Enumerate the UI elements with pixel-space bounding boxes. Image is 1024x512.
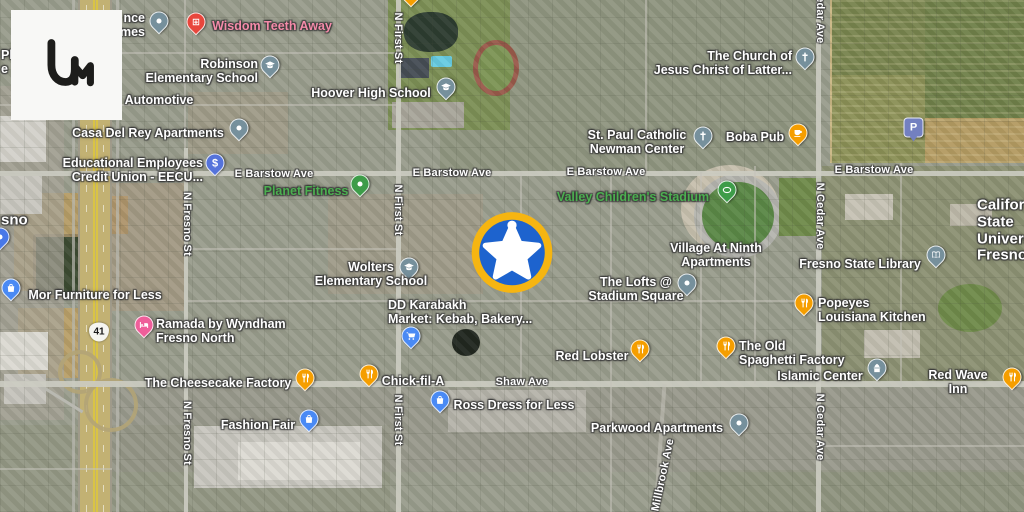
- fresno-state-library-marker: [927, 246, 946, 265]
- shopping-icon: [304, 414, 315, 425]
- eecu-credit-union-marker: $: [206, 154, 225, 173]
- village-at-ninth-apartments-label: Village At Ninth Apartments: [670, 241, 762, 269]
- valley-childrens-stadium-label: Valley Children's Stadium: [557, 190, 709, 204]
- cart-icon: [406, 331, 417, 342]
- top-edge-cut-marker-marker: [402, 0, 421, 4]
- ramada-by-wyndham-fresno-north-marker: [135, 316, 154, 335]
- church-icon: [698, 131, 709, 142]
- parking-marker: P: [904, 118, 923, 137]
- islamic-center-label: Islamic Center: [777, 369, 862, 383]
- food-icon: [635, 344, 646, 355]
- the-lofts-stadium-square-label: The Lofts @ Stadium Square: [588, 275, 683, 303]
- red-lobster-label: Red Lobster: [556, 349, 629, 363]
- church-of-jesus-christ-lds-label: The Church of Jesus Christ of Latter...: [654, 49, 792, 77]
- grocery-marker-marker: [402, 327, 421, 346]
- residence-fragment-marker: [150, 12, 169, 31]
- school-icon: [441, 82, 452, 93]
- parkwood-apartments-label: Parkwood Apartments: [591, 421, 723, 435]
- chick-fil-a-label: Chick-fil-A: [382, 374, 445, 388]
- eecu-credit-union-label: Educational Employees Credit Union - EEC…: [63, 156, 203, 184]
- fitness-icon: [355, 179, 366, 190]
- stadium-icon: [722, 185, 733, 196]
- cheesecake-factory-label: The Cheesecake Factory: [145, 376, 292, 390]
- planet-fitness-marker: [351, 175, 370, 194]
- ross-dress-for-less-marker: [431, 391, 450, 410]
- dot-icon: [234, 123, 245, 134]
- hoover-high-school-label: Hoover High School: [311, 86, 430, 100]
- food-icon: [1007, 372, 1018, 383]
- dd-karabakh-market-label: DD Karabakh Market: Kebab, Bakery...: [388, 298, 532, 326]
- parking-icon: P: [910, 122, 917, 134]
- edge-blue-marker-marker: [0, 228, 10, 247]
- food-icon: [364, 369, 375, 380]
- robinson-elementary-school-marker: [261, 56, 280, 75]
- residence-fragment-label: nce mes: [120, 11, 145, 39]
- um-logo-icon: [28, 26, 106, 104]
- hoover-high-school-marker: [437, 78, 456, 97]
- ross-dress-for-less-label: Ross Dress for Less: [454, 398, 575, 412]
- liveuamap-logo[interactable]: [11, 10, 122, 120]
- shopping-icon: [6, 283, 17, 294]
- mor-furniture-for-less-label: Mor Furniture for Less: [28, 288, 161, 302]
- casa-del-rey-apartments-label: Casa Del Rey Apartments: [72, 126, 224, 140]
- dollar-icon: $: [212, 157, 218, 169]
- ramada-by-wyndham-fresno-north-label: Ramada by Wyndham Fresno North: [156, 317, 286, 345]
- fresno-state-library-label: Fresno State Library: [799, 257, 921, 271]
- hotel-icon: [139, 320, 150, 331]
- dot-icon: [154, 16, 165, 27]
- sheriff-star-event-marker[interactable]: [470, 211, 554, 300]
- church-of-jesus-christ-lds-marker: [796, 48, 815, 67]
- valley-childrens-stadium-marker: [718, 181, 737, 200]
- california-state-university-fresno-label: California State University, Fresno: [977, 197, 1024, 264]
- chick-fil-a-marker: [360, 365, 379, 384]
- hospital-icon: [191, 17, 202, 28]
- mosque-icon: [872, 363, 883, 374]
- old-spaghetti-factory-label: The Old Spaghetti Factory: [739, 339, 845, 367]
- red-lobster-marker: [631, 340, 650, 359]
- islamic-center-marker: [868, 359, 887, 378]
- planet-fitness-label: Planet Fitness: [264, 184, 349, 198]
- shopping-icon: [435, 395, 446, 406]
- red-wave-inn-label: Red Wave Inn: [925, 368, 991, 396]
- red-wave-inn-marker: [1003, 368, 1022, 387]
- dot-icon: [0, 232, 6, 243]
- cafe-icon: [793, 128, 804, 139]
- popeyes-louisiana-kitchen-label: Popeyes Louisiana Kitchen: [818, 296, 926, 324]
- school-icon: [265, 60, 276, 71]
- church-icon: [800, 52, 811, 63]
- cheesecake-factory-marker: [296, 369, 315, 388]
- casa-del-rey-apartments-marker: [230, 119, 249, 138]
- automotive-fragment-label: Automotive: [125, 93, 194, 107]
- mor-furniture-for-less-marker: [2, 279, 21, 298]
- boba-pub-marker: [789, 124, 808, 143]
- st-paul-catholic-newman-center-label: St. Paul Catholic Newman Center: [588, 128, 687, 156]
- robinson-elementary-school-label: Robinson Elementary School: [145, 57, 258, 85]
- wisdom-teeth-away-marker: [187, 13, 206, 32]
- popeyes-louisiana-kitchen-marker: [795, 294, 814, 313]
- boba-pub-label: Boba Pub: [726, 130, 784, 144]
- food-icon: [300, 373, 311, 384]
- wisdom-teeth-away-label: Wisdom Teeth Away: [212, 19, 332, 33]
- parkwood-apartments-marker: [730, 414, 749, 433]
- sheriff-star-icon: [470, 211, 554, 295]
- fashion-fair-marker: [300, 410, 319, 429]
- satellite-map[interactable]: E Barstow AveE Barstow AveE Barstow AveE…: [0, 0, 1024, 512]
- dot-icon: [734, 418, 745, 429]
- fashion-fair-label: Fashion Fair: [221, 418, 295, 432]
- st-paul-catholic-newman-center-marker: [694, 127, 713, 146]
- library-icon: [931, 250, 942, 261]
- food-icon: [799, 298, 810, 309]
- food-icon: [721, 341, 732, 352]
- old-spaghetti-factory-marker: [717, 337, 736, 356]
- wolters-elementary-school-label: Wolters Elementary School: [315, 260, 428, 288]
